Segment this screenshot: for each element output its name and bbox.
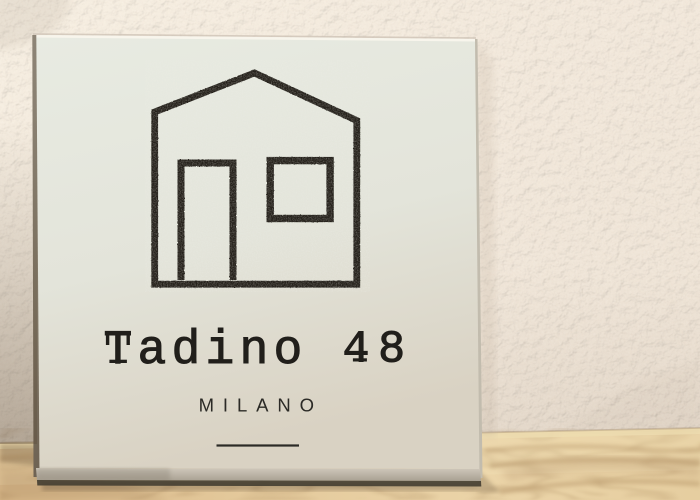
svg-text:48: 48	[343, 325, 414, 376]
svg-text:Tadino: Tadino	[104, 324, 308, 378]
svg-text:MILANO: MILANO	[199, 394, 323, 415]
